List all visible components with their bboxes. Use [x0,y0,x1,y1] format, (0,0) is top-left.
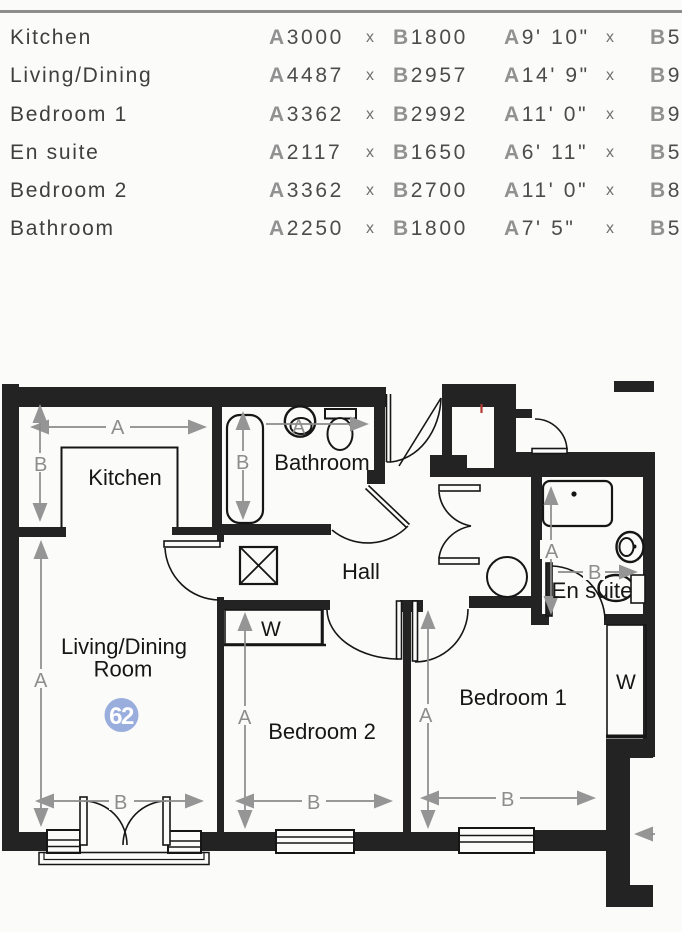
svg-text:B: B [34,454,47,476]
svg-text:A: A [292,417,306,439]
svg-text:Hall: Hall [342,559,380,584]
svg-text:A: A [419,705,433,727]
svg-text:W: W [616,671,636,694]
svg-text:B: B [236,452,249,474]
svg-text:Kitchen: Kitchen [88,465,161,490]
svg-text:Bedroom 2: Bedroom 2 [268,719,376,744]
svg-text:B: B [588,562,601,584]
svg-text:Bathroom: Bathroom [274,450,369,475]
svg-text:62: 62 [109,703,134,730]
svg-text:B: B [307,792,320,814]
svg-text:Living/Dining: Living/Dining [61,634,187,659]
svg-text:Bedroom 1: Bedroom 1 [459,685,567,710]
svg-text:A: A [238,707,252,729]
svg-text:B: B [501,789,514,811]
svg-text:A: A [111,417,125,439]
svg-text:A: A [545,541,559,563]
svg-text:B: B [114,792,127,814]
svg-text:Room: Room [94,657,153,682]
svg-text:A: A [34,670,48,692]
svg-text:W: W [261,618,281,641]
